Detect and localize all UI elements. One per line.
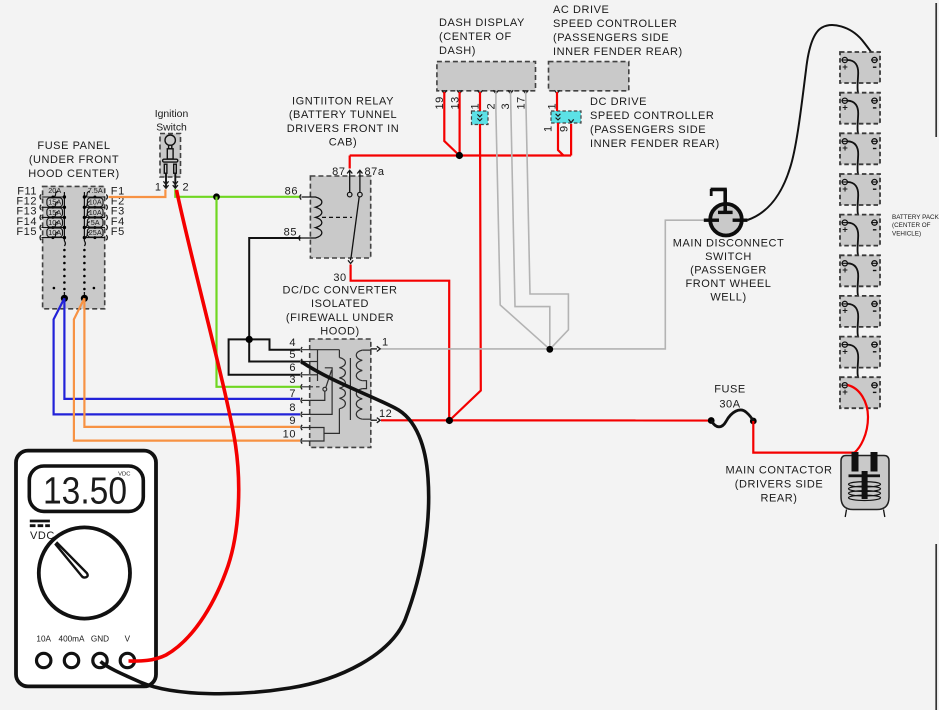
svg-text:F5: F5: [111, 226, 125, 238]
svg-text:CAB): CAB): [329, 137, 357, 149]
svg-text:DASH): DASH): [439, 45, 476, 57]
svg-text:+: +: [842, 265, 848, 276]
svg-text:9: 9: [559, 125, 571, 132]
svg-text:INNER FENDER REAR): INNER FENDER REAR): [553, 46, 683, 58]
svg-text:+: +: [842, 184, 848, 195]
svg-text:V: V: [125, 635, 131, 644]
svg-text:(PASSENGERS SIDE: (PASSENGERS SIDE: [553, 32, 669, 44]
svg-text:INNER FENDER REAR): INNER FENDER REAR): [590, 138, 720, 150]
svg-text:+: +: [842, 306, 848, 317]
svg-text:15A: 15A: [48, 208, 61, 217]
svg-text:10A: 10A: [89, 198, 102, 207]
svg-text:+: +: [842, 103, 848, 114]
svg-text:HOOD): HOOD): [320, 326, 359, 338]
svg-text:ISOLATED: ISOLATED: [311, 298, 369, 310]
svg-text:FUSE PANEL: FUSE PANEL: [37, 140, 110, 152]
svg-text:DC DRIVE: DC DRIVE: [590, 96, 647, 108]
svg-text:(PASSENGERS SIDE: (PASSENGERS SIDE: [590, 124, 706, 136]
svg-text:10A: 10A: [36, 635, 51, 644]
svg-text:+: +: [842, 62, 848, 73]
svg-text:12: 12: [379, 408, 392, 420]
svg-text:1: 1: [155, 182, 162, 194]
svg-text:2: 2: [183, 182, 190, 194]
svg-text:+: +: [842, 224, 848, 235]
svg-text:30: 30: [333, 272, 346, 284]
svg-text:5: 5: [289, 349, 296, 361]
svg-text:1: 1: [543, 125, 555, 132]
svg-text:10A: 10A: [48, 218, 61, 227]
svg-text:Switch: Switch: [156, 123, 187, 134]
svg-text:F15: F15: [16, 226, 37, 238]
svg-text:10A: 10A: [48, 228, 61, 237]
svg-text:13.50: 13.50: [43, 471, 127, 513]
svg-text:DRIVERS FRONT IN: DRIVERS FRONT IN: [287, 123, 400, 135]
svg-text:(CENTER OF: (CENTER OF: [439, 31, 512, 43]
svg-text:87: 87: [332, 166, 345, 178]
svg-text:(UNDER FRONT: (UNDER FRONT: [29, 154, 119, 166]
svg-text:MAIN DISCONNECT: MAIN DISCONNECT: [673, 238, 785, 250]
svg-text:BATTERY PACK: BATTERY PACK: [892, 214, 939, 221]
svg-text:WELL): WELL): [710, 292, 746, 304]
svg-text:(FIREWALL UNDER: (FIREWALL UNDER: [286, 312, 394, 324]
svg-text:SWITCH: SWITCH: [705, 251, 752, 263]
svg-text:DC/DC CONVERTER: DC/DC CONVERTER: [282, 285, 397, 297]
svg-text:10: 10: [283, 428, 296, 440]
svg-text:10A: 10A: [89, 208, 102, 217]
svg-text:30A: 30A: [719, 399, 740, 411]
svg-text:20A: 20A: [48, 186, 61, 195]
svg-text:GND: GND: [91, 635, 109, 644]
svg-text:400mA: 400mA: [59, 635, 85, 644]
svg-text:VEHICLE): VEHICLE): [892, 231, 921, 238]
svg-text:7.5A: 7.5A: [88, 186, 103, 195]
svg-text:87a: 87a: [365, 166, 385, 178]
svg-text:6: 6: [289, 362, 296, 374]
svg-text:FUSE: FUSE: [714, 384, 746, 396]
svg-text:(CENTER OF: (CENTER OF: [892, 222, 931, 229]
svg-text:+: +: [842, 143, 848, 154]
svg-text:15A: 15A: [48, 198, 61, 207]
svg-text:7: 7: [289, 388, 296, 400]
svg-text:86: 86: [285, 186, 298, 198]
svg-text:HOOD CENTER): HOOD CENTER): [28, 168, 120, 180]
svg-text:25A: 25A: [89, 228, 102, 237]
svg-text:1: 1: [382, 337, 389, 349]
svg-text:MAIN CONTACTOR: MAIN CONTACTOR: [726, 465, 833, 477]
svg-text:8: 8: [289, 402, 296, 414]
svg-text:Ignition: Ignition: [155, 109, 189, 120]
svg-text:5A: 5A: [91, 218, 100, 227]
svg-text:(PASSENGER: (PASSENGER: [690, 265, 767, 277]
svg-text:9: 9: [289, 415, 296, 427]
svg-text:(BATTERY TUNNEL: (BATTERY TUNNEL: [289, 109, 397, 121]
svg-text:+: +: [842, 387, 848, 398]
svg-text:IGNTIITON RELAY: IGNTIITON RELAY: [292, 96, 394, 108]
svg-text:4: 4: [289, 337, 296, 349]
svg-text:3: 3: [289, 374, 296, 386]
svg-text:FRONT WHEEL: FRONT WHEEL: [686, 278, 772, 290]
svg-text:+: +: [842, 346, 848, 357]
svg-text:AC DRIVE: AC DRIVE: [553, 4, 609, 16]
svg-text:SPEED CONTROLLER: SPEED CONTROLLER: [553, 18, 677, 30]
svg-text:DASH DISPLAY: DASH DISPLAY: [439, 17, 525, 29]
svg-text:SPEED CONTROLLER: SPEED CONTROLLER: [590, 110, 714, 122]
svg-text:(DRIVERS SIDE: (DRIVERS SIDE: [735, 479, 823, 491]
svg-text:REAR): REAR): [761, 493, 798, 505]
svg-text:85: 85: [284, 227, 297, 239]
